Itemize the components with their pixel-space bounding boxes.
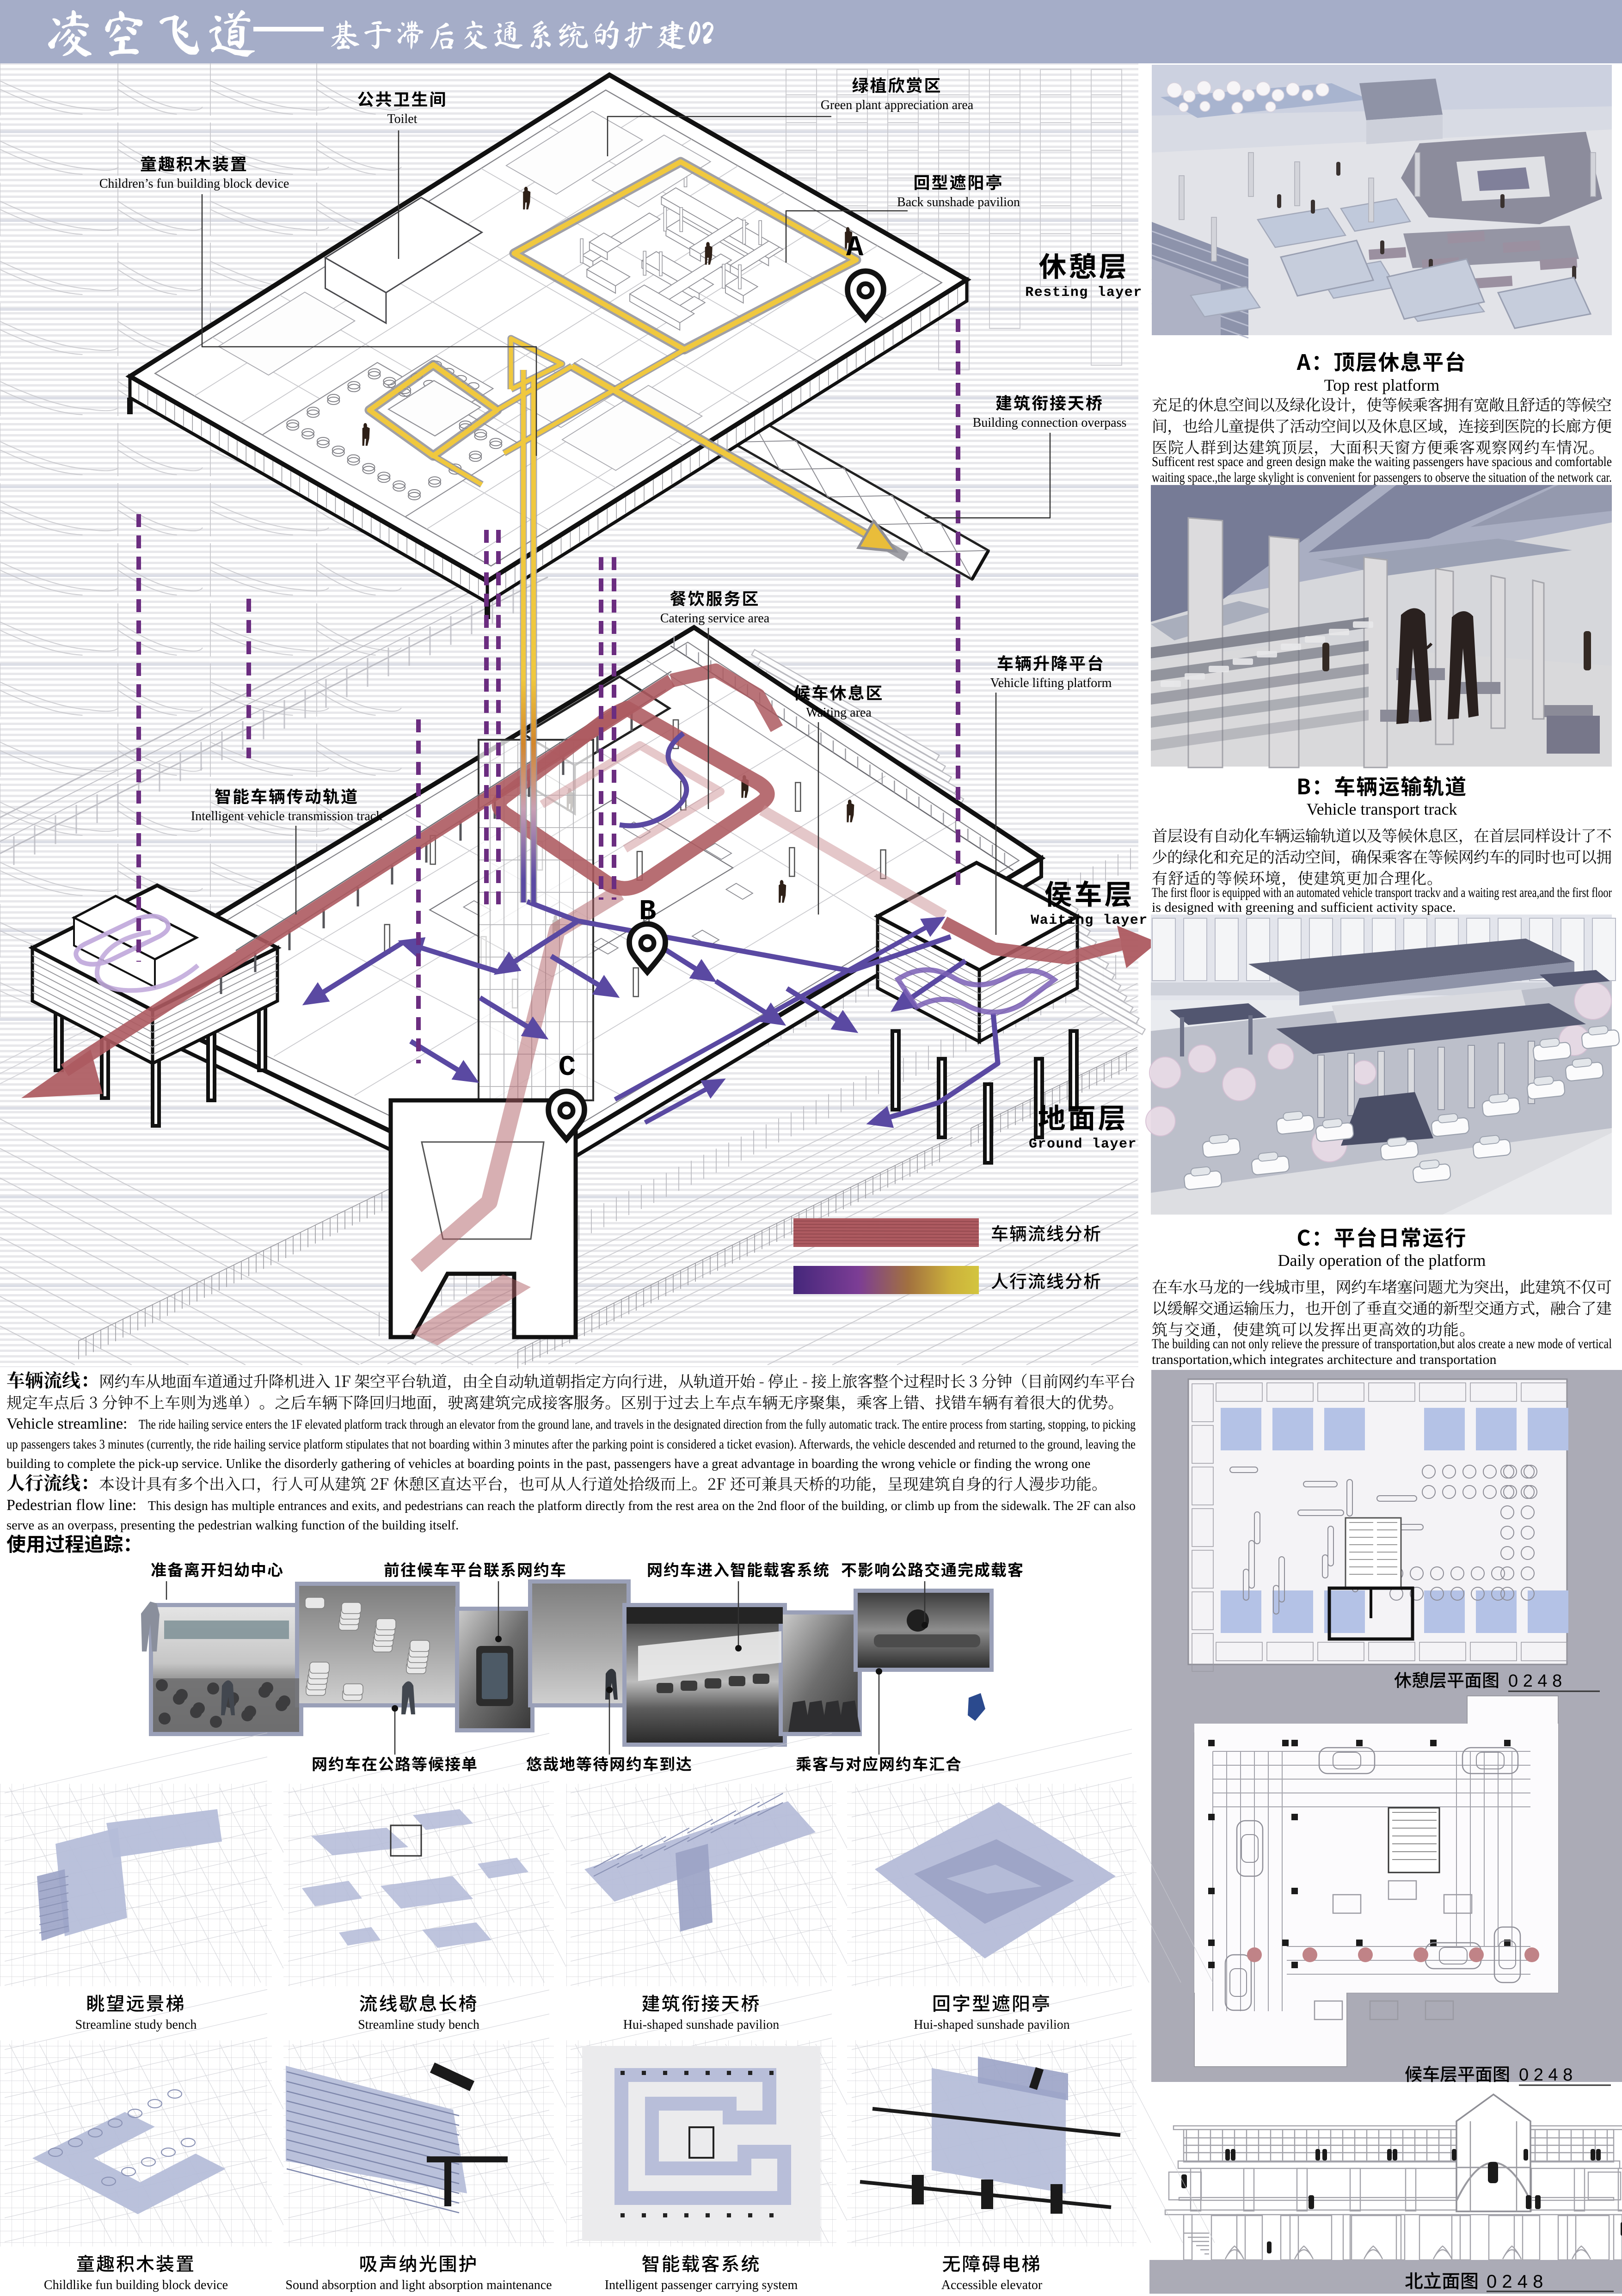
- svg-text:Toilet: Toilet: [387, 112, 418, 126]
- svg-text:The ride hailing service enter: The ride hailing service enters the 1F e…: [139, 1418, 1136, 1432]
- svg-text:building to complete the pick-: building to complete the pick-up service…: [6, 1457, 1090, 1471]
- svg-text:Sound absorption and light abs: Sound absorption and light absorption ma…: [285, 2278, 552, 2292]
- svg-text:0 2 4: 0 2 4 8: [1519, 2065, 1573, 2085]
- svg-text:Streamline study bench: Streamline study bench: [75, 2018, 197, 2032]
- svg-text:Green plant appreciation area: Green plant appreciation area: [821, 98, 974, 112]
- svg-text:Waiting layer: Waiting layer: [1031, 913, 1148, 928]
- svg-text:Building connection overpass: Building connection overpass: [973, 416, 1127, 430]
- svg-text:Ground layer: Ground layer: [1029, 1136, 1137, 1152]
- svg-text:Pedestrian flow line:: Pedestrian flow line:: [6, 1497, 136, 1514]
- svg-text:up passengers takes 3 minutes: up passengers takes 3 minutes (currently…: [6, 1437, 1136, 1452]
- svg-text:waiting space.,the large skyli: waiting space.,the large skylight is con…: [1152, 470, 1612, 485]
- svg-text:This design has multiple entra: This design has multiple entrances and e…: [148, 1499, 1136, 1513]
- svg-text:Waiting area: Waiting area: [806, 706, 872, 720]
- svg-text:0 2 4: 0 2 4 8: [1508, 1671, 1562, 1691]
- svg-text:Intelligent vehicle transmissi: Intelligent vehicle transmission track: [191, 809, 382, 823]
- svg-text:Vehicle streamline:: Vehicle streamline:: [6, 1415, 128, 1432]
- svg-text:Childlike fun building block d: Childlike fun building block device: [44, 2278, 228, 2292]
- svg-text:C: C: [559, 1051, 576, 1084]
- svg-text:transportation,which integrate: transportation,which integrates architec…: [1152, 1352, 1497, 1367]
- svg-text:Sufficent rest space and green: Sufficent rest space and green design ma…: [1152, 454, 1612, 469]
- svg-text:Accessible elevator: Accessible elevator: [941, 2278, 1043, 2292]
- svg-text:Children’s fun building block: Children’s fun building block device: [99, 177, 289, 191]
- svg-text:Top rest platform: Top rest platform: [1324, 376, 1439, 394]
- svg-text:Back sunshade pavilion: Back sunshade pavilion: [897, 195, 1020, 209]
- svg-text:0 2 4: 0 2 4 8: [1487, 2271, 1543, 2292]
- svg-text:A: A: [846, 231, 864, 264]
- svg-text:Vehicle transport track: Vehicle transport track: [1307, 800, 1457, 818]
- svg-text:The building can not only reli: The building can not only relieve the pr…: [1152, 1336, 1612, 1351]
- svg-text:The first floor is equipped wi: The first floor is equipped with an auto…: [1152, 885, 1612, 900]
- svg-text:Vehicle lifting platform: Vehicle lifting platform: [990, 676, 1112, 690]
- svg-text:Daily operation of the platfor: Daily operation of the platform: [1278, 1251, 1486, 1270]
- svg-text:Resting layer: Resting layer: [1025, 285, 1143, 301]
- svg-text:serve as an overpass, presenti: serve as an overpass, presenting the ped…: [6, 1518, 459, 1533]
- svg-text:Intelligent passenger carrying: Intelligent passenger carrying system: [605, 2278, 798, 2292]
- svg-text:Catering service area: Catering service area: [660, 611, 770, 626]
- svg-text:is designed with greening and: is designed with greening and sufficient…: [1152, 900, 1456, 915]
